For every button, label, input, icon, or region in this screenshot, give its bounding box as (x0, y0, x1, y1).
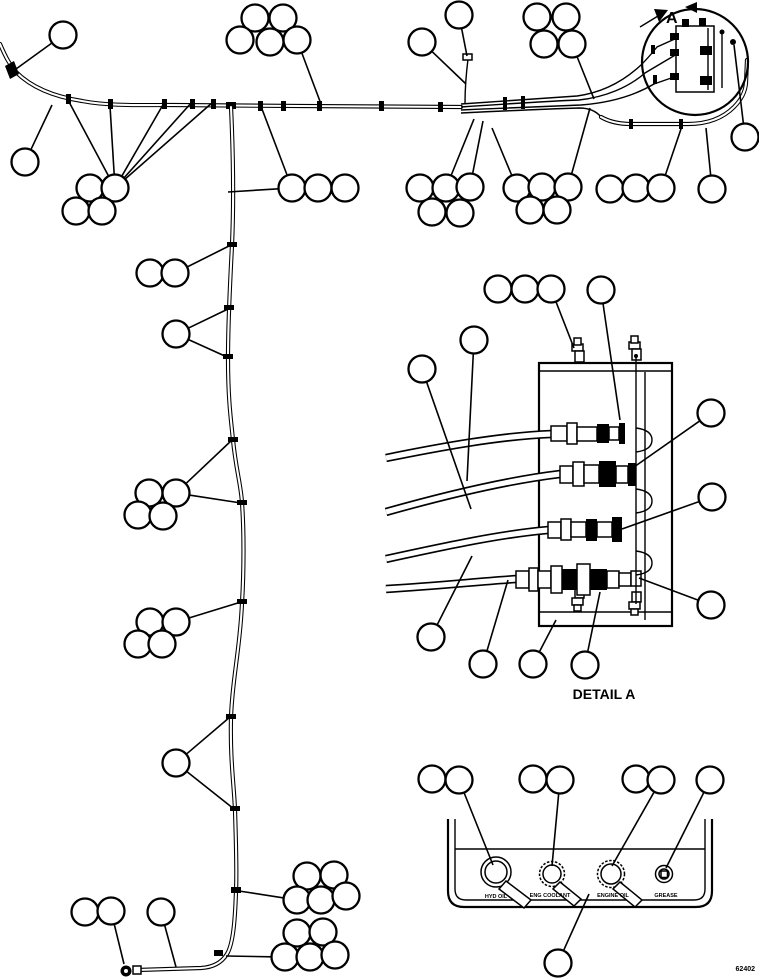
callout-balloon (12, 149, 39, 176)
callout-balloon (332, 175, 359, 202)
callout-balloon (150, 503, 177, 530)
callout-balloon (520, 766, 547, 793)
callout-balloon (457, 174, 484, 201)
balloon-leader-line (577, 57, 594, 100)
doc-number: 62402 (736, 966, 756, 973)
balloon-leader-line (539, 620, 556, 652)
balloon-leader-line (186, 717, 230, 754)
balloon-leader-line (188, 340, 227, 358)
balloon-leader-line (556, 302, 574, 348)
balloon-leader-line (639, 578, 698, 600)
callout-balloons (12, 2, 759, 977)
balloon-leader-line (189, 495, 241, 503)
balloon-leader-line (165, 925, 176, 967)
callout-balloon (308, 887, 335, 914)
callout-balloon (461, 327, 488, 354)
balloon-leader-line (68, 100, 109, 176)
callout-balloon (419, 766, 446, 793)
callout-balloon (272, 944, 299, 971)
balloon-leader-line (228, 189, 279, 192)
balloon-leader-line (473, 121, 483, 174)
callout-balloon (297, 944, 324, 971)
callout-balloon (531, 31, 558, 58)
balloon-leader-line (186, 440, 232, 484)
branch-tube (465, 59, 468, 104)
port-label: HYD OIL (485, 894, 508, 900)
balloon-leader-line (31, 105, 52, 150)
callout-balloon (648, 767, 675, 794)
fitting-1 (551, 423, 625, 444)
callout-balloon (257, 29, 284, 56)
balloon-leader-line (302, 53, 321, 104)
callout-balloon (517, 197, 544, 224)
main-harness (0, 38, 747, 129)
balloon-leader-line (665, 126, 682, 175)
balloon-leader-line (572, 108, 590, 174)
service-panel: HYD OIL ENG COOLANT ENGINE OIL GREASE (448, 819, 712, 908)
balloon-leader-line (16, 43, 52, 69)
hose-routing-diagram: A (0, 0, 759, 978)
callout-balloon (698, 592, 725, 619)
callout-balloon (89, 198, 116, 225)
callout-balloon (732, 124, 759, 151)
balloon-leader-line (487, 580, 508, 651)
balloon-leader-line (634, 421, 700, 467)
callout-balloon (698, 400, 725, 427)
callout-balloon (409, 29, 436, 56)
callout-balloon (407, 175, 434, 202)
balloon-leader-line (552, 793, 559, 866)
view-label: A (666, 10, 678, 27)
detail-a-label: DETAIL A (573, 686, 636, 702)
callout-balloon (648, 175, 675, 202)
callout-balloon (227, 27, 254, 54)
balloon-leader-line (462, 28, 467, 56)
fitting-3 (548, 517, 622, 542)
harness-end-fitting (5, 61, 19, 79)
callout-balloon (470, 651, 497, 678)
fitting-4 (516, 564, 641, 595)
balloon-leader-line (226, 956, 272, 957)
callout-balloon (446, 2, 473, 29)
balloon-leader-line (110, 106, 114, 175)
callout-balloon (553, 4, 580, 31)
callout-balloon (623, 175, 650, 202)
callout-balloon (409, 356, 436, 383)
callout-balloon (512, 276, 539, 303)
detail-callout-circle: A (640, 2, 748, 115)
view-arrowhead-2 (685, 2, 697, 13)
callout-balloon (545, 950, 572, 977)
balloon-leader-line (187, 771, 234, 809)
balloon-leader-line (451, 119, 474, 176)
callout-balloon (418, 624, 445, 651)
vertical-harness (121, 107, 248, 977)
balloon-leader-line (188, 309, 228, 328)
balloon-leader-line (464, 793, 493, 866)
parts-diagram-page: A (0, 0, 759, 978)
callout-balloon (322, 942, 349, 969)
balloon-leader-line (612, 792, 654, 866)
balloon-leader-line (114, 924, 124, 964)
callout-balloon (572, 652, 599, 679)
balloon-leader-line (125, 102, 213, 179)
callout-balloon (699, 484, 726, 511)
callout-balloon (446, 767, 473, 794)
callout-balloon (697, 767, 724, 794)
callout-balloon (279, 175, 306, 202)
callout-balloon (597, 176, 624, 203)
callout-balloon (98, 898, 125, 925)
balloon-leader-line (706, 128, 711, 176)
callout-balloon (162, 260, 189, 287)
balloon-leader-line (432, 51, 466, 84)
balloon-leader-line (603, 303, 620, 420)
callout-balloon (125, 502, 152, 529)
callout-balloon (305, 175, 332, 202)
callout-balloon (544, 197, 571, 224)
port-label: ENG COOLANT (530, 893, 571, 899)
port-label: GREASE (654, 893, 678, 899)
callout-balloon (538, 276, 565, 303)
callout-balloon (72, 899, 99, 926)
balloon-leader-line (437, 556, 472, 625)
rod-clip (636, 489, 652, 513)
balloon-leader-line (622, 502, 699, 530)
balloon-leader-line (239, 891, 284, 898)
balloon-leader-line (492, 128, 512, 176)
callout-balloon (699, 176, 726, 203)
callout-balloon (559, 31, 586, 58)
balloon-leader-line (262, 109, 287, 175)
callout-balloon (485, 276, 512, 303)
rod-clip (636, 428, 652, 452)
callout-balloon (447, 200, 474, 227)
callout-balloon (149, 631, 176, 658)
balloon-leader-line (189, 602, 241, 618)
balloon-leader-line (666, 792, 704, 868)
callout-balloon (163, 321, 190, 348)
callout-balloon (137, 260, 164, 287)
callout-balloon (148, 899, 175, 926)
callout-balloon (63, 198, 90, 225)
callout-balloon (163, 750, 190, 777)
port-grease: GREASE (654, 866, 678, 900)
balloon-leader-line (467, 354, 473, 482)
callout-balloon (547, 767, 574, 794)
callout-balloon (588, 277, 615, 304)
fitting-2 (560, 461, 636, 487)
callout-balloon (284, 920, 311, 947)
callout-balloon (623, 766, 650, 793)
callout-balloon (419, 199, 446, 226)
balloon-leader-line (187, 246, 229, 267)
callout-balloon (524, 4, 551, 31)
callout-balloon (333, 883, 360, 910)
port-label: ENGINE OIL (597, 893, 629, 899)
callout-balloon (50, 22, 77, 49)
balloon-leader-line (588, 592, 600, 652)
callout-balloon (520, 651, 547, 678)
callout-balloon (284, 27, 311, 54)
